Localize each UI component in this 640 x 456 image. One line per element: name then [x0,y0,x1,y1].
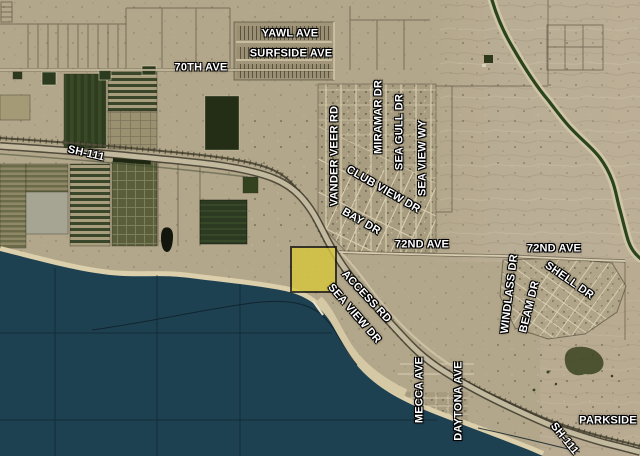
map-viewport[interactable]: YAWL AVESURFSIDE AVE70TH AVESH-111VANDER… [0,0,640,456]
highlighted-parcel[interactable] [290,246,337,293]
satellite-imagery [0,0,640,456]
tree-clump [484,55,493,63]
